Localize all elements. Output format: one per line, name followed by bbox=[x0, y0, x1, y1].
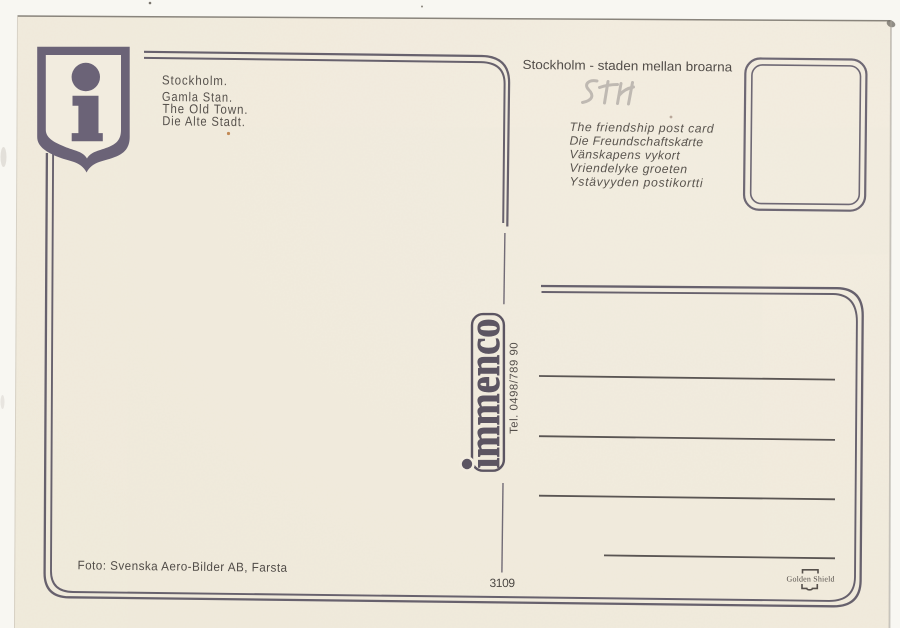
svg-text:3109: 3109 bbox=[490, 576, 516, 590]
svg-text:Tel. 0498/789 90: Tel. 0498/789 90 bbox=[508, 342, 520, 434]
svg-text:Stockholm.: Stockholm. bbox=[162, 72, 228, 88]
svg-text:Die Alte Stadt.: Die Alte Stadt. bbox=[162, 113, 246, 129]
svg-text:ımmenco: ımmenco bbox=[459, 318, 509, 468]
svg-text:Ystävyyden postikortti: Ystävyyden postikortti bbox=[569, 175, 703, 191]
svg-text:Foto: Svenska Aero-Bilder AB,: Foto: Svenska Aero-Bilder AB, Farsta bbox=[77, 558, 287, 575]
svg-text:Golden Shield: Golden Shield bbox=[787, 575, 835, 584]
svg-text:Stockholm - staden mellan broa: Stockholm - staden mellan broarna bbox=[522, 57, 733, 75]
